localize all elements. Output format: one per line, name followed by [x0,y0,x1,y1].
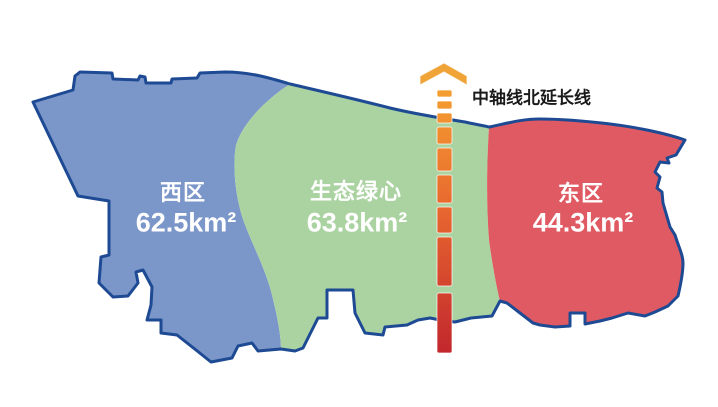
green-heart-area: 63.8km² [307,210,408,237]
axis-dash [437,113,452,123]
east-region-name: 东区 [558,183,604,205]
axis-dash [437,237,452,286]
axis-dash [437,148,452,171]
axis-dash [437,90,452,97]
east-region-area: 44.3km² [533,210,634,237]
axis-arrow-icon [420,63,467,85]
axis-dash [437,175,452,203]
axis-annotation: 中轴线北延长线 [472,90,591,107]
west-region-name: 西区 [160,182,206,204]
axis-dash [437,207,452,233]
axis-dash [437,101,452,109]
west-region-area: 62.5km² [136,210,237,237]
axis-dash [437,127,452,144]
green-heart-name: 生态绿心 [310,181,402,203]
planning-map: 西区 62.5km² 生态绿心 63.8km² 东区 44.3km² 中轴线北延… [0,0,718,407]
axis-dash [437,293,452,353]
